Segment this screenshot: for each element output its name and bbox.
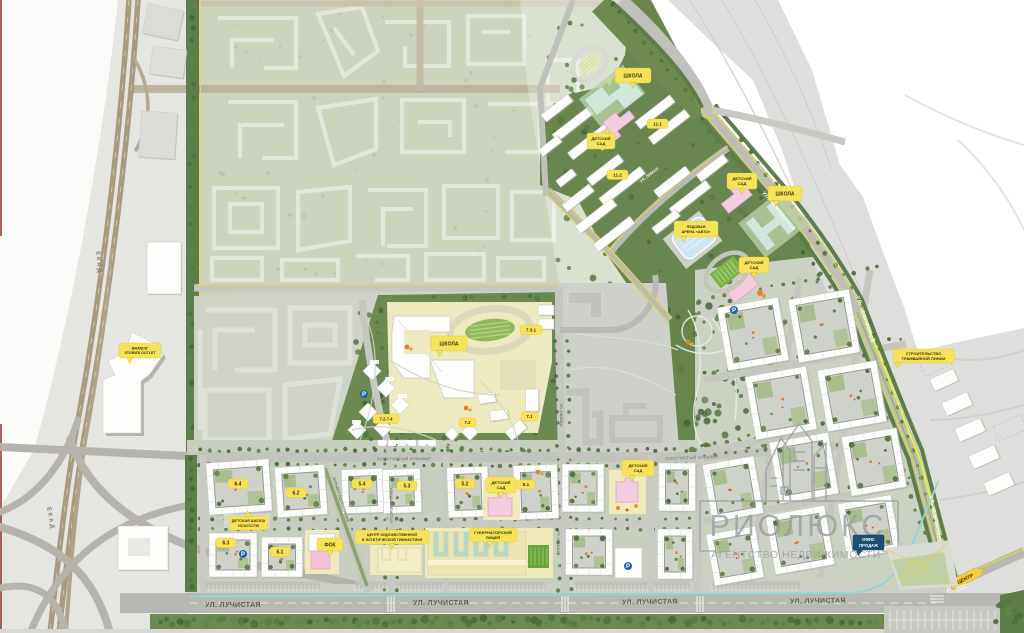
svg-text:P: P [732,308,736,314]
svg-text:ЛЕДОВАЯ: ЛЕДОВАЯ [687,225,706,229]
svg-text:АРЕНА «АВТО»: АРЕНА «АВТО» [681,230,710,234]
svg-text:УЛ. ЛУЧИСТАЯ: УЛ. ЛУЧИСТАЯ [413,600,469,607]
svg-text:7.3.1: 7.3.1 [526,327,537,332]
svg-text:УЛ. ЛЮБВИ: УЛ. ЛЮБВИ [559,404,564,427]
svg-text:УЛ. ЛУЧИСТАЯ: УЛ. ЛУЧИСТАЯ [205,602,261,609]
svg-text:АГЕНТСТВО НЕДВИЖИМОСТИ: АГЕНТСТВО НЕДВИЖИМОСТИ [711,549,881,561]
svg-text:САД: САД [597,141,606,146]
svg-text:ДЕТСКАЯ ШКОЛА: ДЕТСКАЯ ШКОЛА [232,519,266,523]
svg-text:7.2: 7.2 [464,420,471,425]
svg-text:УЛИЦА ИСКРИСТАЯ: УЛИЦА ИСКРИСТАЯ [389,487,393,523]
svg-text:ЗОЛОТИСТЫЙ БУЛЬВАР: ЗОЛОТИСТЫЙ БУЛЬВАР [377,456,431,461]
svg-text:САД: САД [750,265,759,270]
svg-text:6.4: 6.4 [235,482,242,488]
svg-text:САД: САД [738,181,747,186]
svg-text:САД: САД [497,485,506,490]
svg-text:6.2: 6.2 [293,491,300,497]
svg-text:И ЭСТЕТИЧЕСКОЙ ГИМНАСТИКИ: И ЭСТЕТИЧЕСКОЙ ГИМНАСТИКИ [362,538,423,542]
svg-text:САД: САД [634,468,643,473]
svg-text:УЛ. ЛУЧИСТАЯ: УЛ. ЛУЧИСТАЯ [790,598,846,606]
svg-text:5.2: 5.2 [462,482,469,488]
svg-text:ФОК: ФОК [324,542,336,548]
svg-text:ЛИЦЕЙ: ЛИЦЕЙ [486,535,500,540]
svg-text:P: P [362,392,366,398]
svg-text:ТРАМВАЙНОЙ ЛИНИИ: ТРАМВАЙНОЙ ЛИНИИ [902,356,946,361]
svg-text:5.1: 5.1 [523,482,530,487]
svg-text:5.4: 5.4 [359,482,366,488]
svg-text:5.3: 5.3 [404,484,411,490]
svg-text:ПРОДАЖ: ПРОДАЖ [859,543,878,548]
svg-text:ИСКУССТВ: ИСКУССТВ [238,524,259,528]
svg-text:ШКОЛА: ШКОЛА [440,341,459,347]
svg-text:7.2-7.4: 7.2-7.4 [379,416,393,421]
svg-text:ШКОЛА: ШКОЛА [624,73,643,79]
svg-text:УЛ. ЛУЧИСТАЯ: УЛ. ЛУЧИСТАЯ [622,599,678,607]
svg-text:P: P [241,552,245,558]
svg-text:STORIES OUTLET: STORIES OUTLET [124,351,156,355]
svg-text:P: P [626,564,630,570]
svg-text:7.1: 7.1 [526,414,533,419]
svg-text:6.1: 6.1 [277,550,284,556]
svg-text:ШКОЛА: ШКОЛА [776,191,795,197]
svg-text:BRANDS': BRANDS' [132,346,148,350]
svg-text:УЛ. ЛЮБВИ: УЛ. ЛЮБВИ [556,531,561,554]
svg-text:11.2: 11.2 [613,172,622,177]
svg-text:11.1: 11.1 [653,121,662,126]
svg-text:ЦЕНТР ХУДОЖЕСТВЕННОЙ: ЦЕНТР ХУДОЖЕСТВЕННОЙ [367,533,417,537]
svg-text:ОФИС: ОФИС [862,537,875,542]
svg-text:6.3: 6.3 [223,541,230,547]
